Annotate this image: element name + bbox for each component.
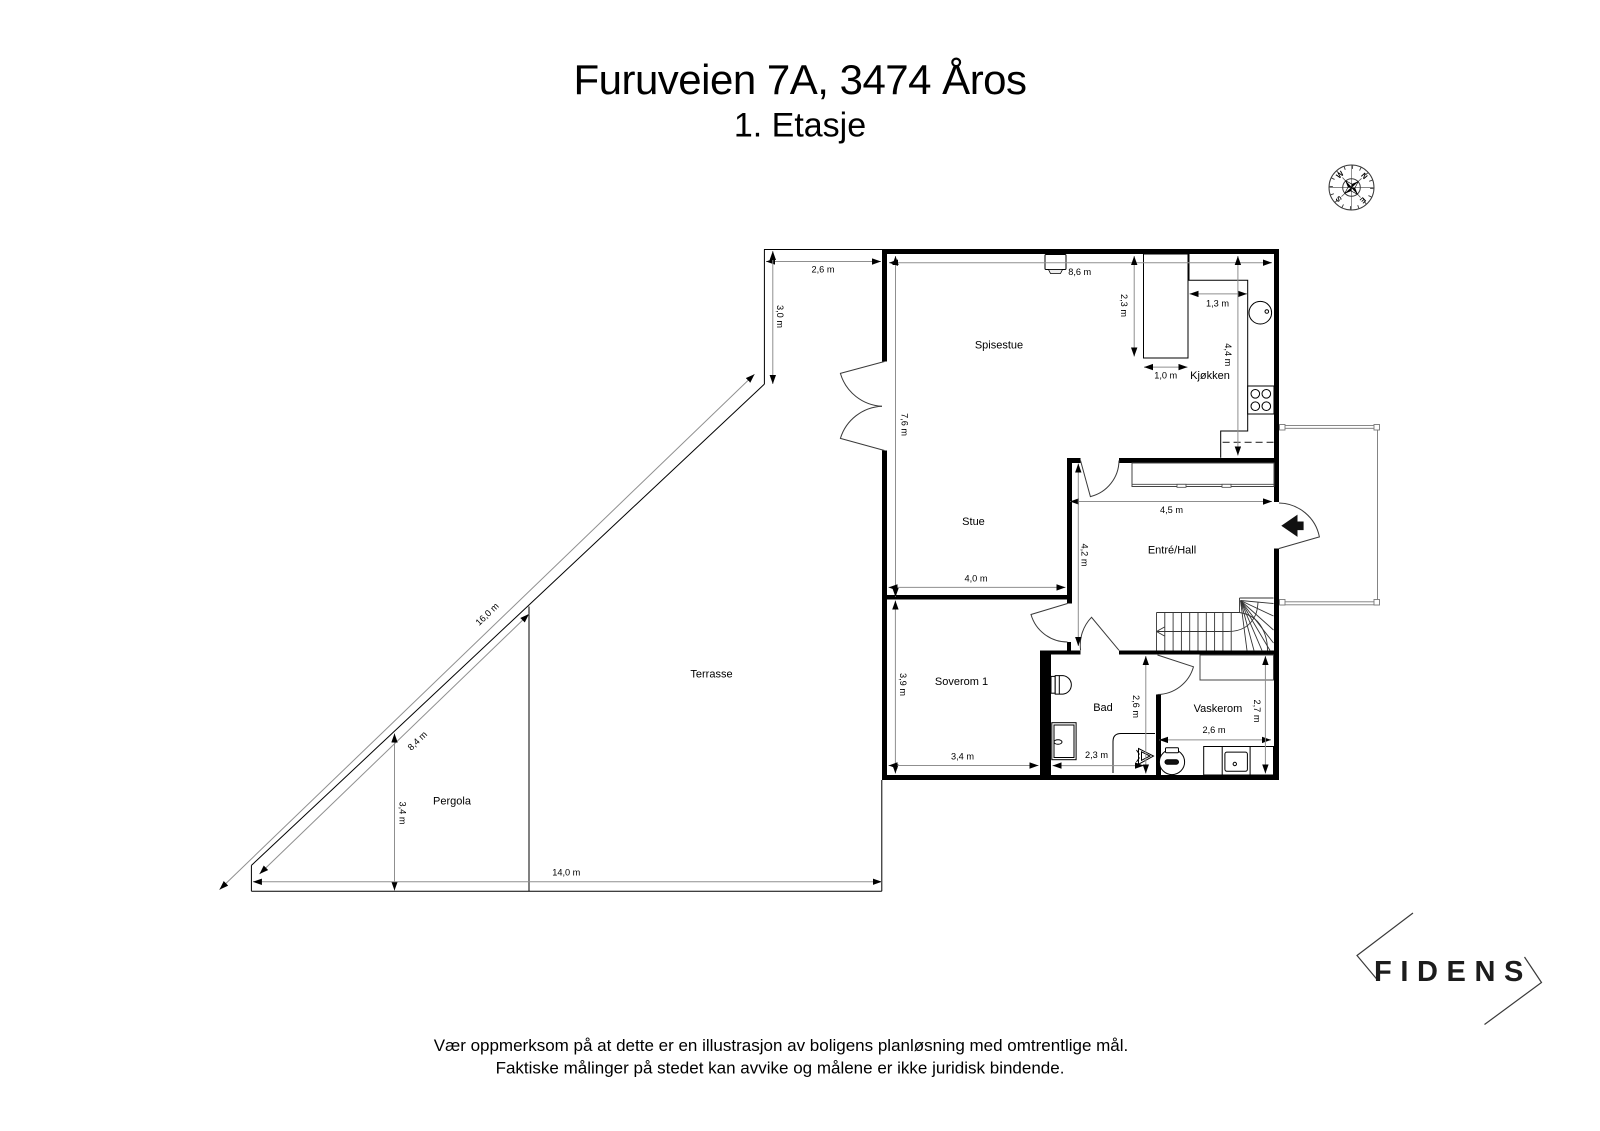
svg-text:FIDENS: FIDENS (1374, 956, 1532, 988)
svg-text:Kjøkken: Kjøkken (1190, 370, 1230, 382)
svg-text:8,4 m: 8,4 m (406, 729, 430, 752)
svg-text:1,0 m: 1,0 m (1154, 370, 1177, 380)
svg-text:2,6 m: 2,6 m (812, 264, 835, 274)
svg-text:3,9 m: 3,9 m (898, 673, 908, 696)
svg-text:16,0 m: 16,0 m (474, 601, 501, 628)
svg-text:Stue: Stue (962, 516, 985, 528)
svg-text:Furuveien 7A, 3474 Åros: Furuveien 7A, 3474 Åros (573, 56, 1026, 103)
svg-text:2,6 m: 2,6 m (1203, 725, 1226, 735)
svg-text:2,6 m: 2,6 m (1131, 695, 1141, 718)
svg-text:W: W (1334, 168, 1346, 180)
svg-text:Entré/Hall: Entré/Hall (1148, 544, 1196, 556)
svg-text:3,0 m: 3,0 m (775, 305, 785, 328)
svg-text:Faktiske målinger på stedet ka: Faktiske målinger på stedet kan avvike o… (496, 1059, 1065, 1078)
svg-text:4,0 m: 4,0 m (965, 573, 988, 583)
svg-text:2,3 m: 2,3 m (1085, 750, 1108, 760)
svg-text:Pergola: Pergola (433, 795, 472, 807)
svg-text:1,3 m: 1,3 m (1206, 298, 1229, 308)
svg-text:3,4 m: 3,4 m (398, 802, 408, 825)
svg-text:Soverom 1: Soverom 1 (935, 676, 988, 688)
svg-text:4,2 m: 4,2 m (1080, 544, 1090, 567)
svg-text:Bad: Bad (1093, 702, 1113, 714)
svg-text:2,7 m: 2,7 m (1252, 700, 1262, 723)
svg-text:Spisestue: Spisestue (975, 339, 1023, 351)
svg-text:7,6 m: 7,6 m (899, 413, 909, 436)
svg-text:14,0 m: 14,0 m (552, 868, 580, 878)
svg-text:Vær oppmerksom på at dette er: Vær oppmerksom på at dette er en illustr… (434, 1036, 1129, 1055)
svg-text:4,5 m: 4,5 m (1160, 505, 1183, 515)
svg-text:4,4 m: 4,4 m (1223, 343, 1233, 366)
svg-text:1. Etasje: 1. Etasje (734, 107, 866, 145)
svg-text:2,3 m: 2,3 m (1119, 294, 1129, 317)
svg-text:8,6 m: 8,6 m (1068, 267, 1091, 277)
svg-text:Vaskerom: Vaskerom (1194, 703, 1243, 715)
svg-text:3,4 m: 3,4 m (951, 751, 974, 761)
svg-text:Terrasse: Terrasse (690, 668, 732, 680)
